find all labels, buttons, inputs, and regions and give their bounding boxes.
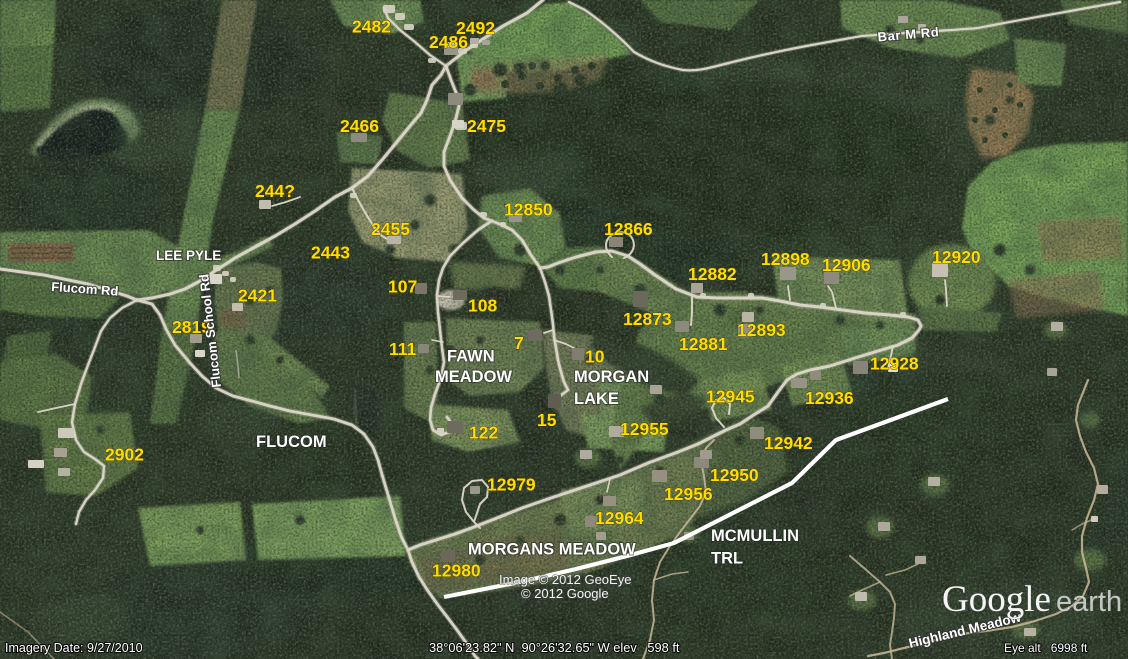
svg-text:2443: 2443 (311, 243, 350, 263)
svg-text:2421: 2421 (238, 286, 277, 306)
svg-text:FAWN: FAWN (447, 348, 495, 366)
svg-text:12920: 12920 (932, 247, 981, 267)
svg-text:15: 15 (537, 410, 557, 430)
svg-text:12873: 12873 (623, 309, 672, 329)
svg-text:7: 7 (514, 333, 524, 353)
svg-text:2466: 2466 (340, 116, 379, 136)
svg-text:12964: 12964 (595, 508, 644, 528)
svg-text:Google: Google (942, 579, 1051, 620)
svg-text:12980: 12980 (432, 561, 481, 581)
svg-text:MORGAN: MORGAN (574, 368, 649, 386)
svg-text:10: 10 (585, 347, 605, 367)
svg-text:TRL: TRL (711, 550, 743, 568)
svg-text:© 2012 Google: © 2012 Google (521, 586, 609, 601)
svg-text:12936: 12936 (805, 388, 854, 408)
svg-text:108: 108 (468, 296, 497, 316)
svg-text:2482: 2482 (352, 17, 391, 37)
svg-text:12955: 12955 (620, 419, 669, 439)
svg-text:earth: earth (1056, 586, 1122, 618)
svg-text:Imagery Date: 9/27/2010: Imagery Date: 9/27/2010 (5, 641, 143, 655)
svg-text:2455: 2455 (371, 219, 410, 239)
svg-text:2902: 2902 (105, 445, 144, 465)
svg-text:MORGANS MEADOW: MORGANS MEADOW (468, 541, 636, 559)
svg-text:12893: 12893 (737, 320, 786, 340)
svg-text:MEADOW: MEADOW (435, 368, 512, 386)
svg-text:MCMULLIN: MCMULLIN (711, 527, 799, 545)
svg-text:Eye alt 6998 ft: Eye alt 6998 ft (1004, 641, 1088, 655)
svg-text:12928: 12928 (870, 354, 919, 374)
svg-text:12945: 12945 (706, 387, 755, 407)
svg-text:111: 111 (389, 339, 417, 359)
svg-text:2486: 2486 (429, 32, 468, 52)
svg-text:12950: 12950 (710, 465, 759, 485)
svg-text:LEE PYLE: LEE PYLE (156, 248, 221, 263)
svg-text:12942: 12942 (764, 433, 813, 453)
svg-text:12956: 12956 (664, 484, 713, 504)
svg-text:12850: 12850 (504, 200, 553, 220)
svg-text:12979: 12979 (487, 475, 536, 495)
svg-text:12881: 12881 (679, 334, 728, 354)
svg-text:107: 107 (388, 277, 417, 297)
svg-text:12898: 12898 (761, 249, 810, 269)
svg-text:12906: 12906 (822, 255, 871, 275)
svg-text:Image © 2012 GeoEye: Image © 2012 GeoEye (499, 572, 631, 587)
svg-text:12866: 12866 (604, 219, 653, 239)
svg-text:12882: 12882 (688, 264, 737, 284)
svg-text:38°06'23.82" N 90°26'32.65" W: 38°06'23.82" N 90°26'32.65" W elev 598 f… (429, 640, 680, 655)
svg-text:244?: 244? (255, 181, 295, 201)
svg-text:2475: 2475 (467, 116, 506, 136)
svg-text:FLUCOM: FLUCOM (256, 433, 327, 451)
svg-text:LAKE: LAKE (574, 390, 619, 408)
svg-text:122: 122 (469, 423, 498, 443)
